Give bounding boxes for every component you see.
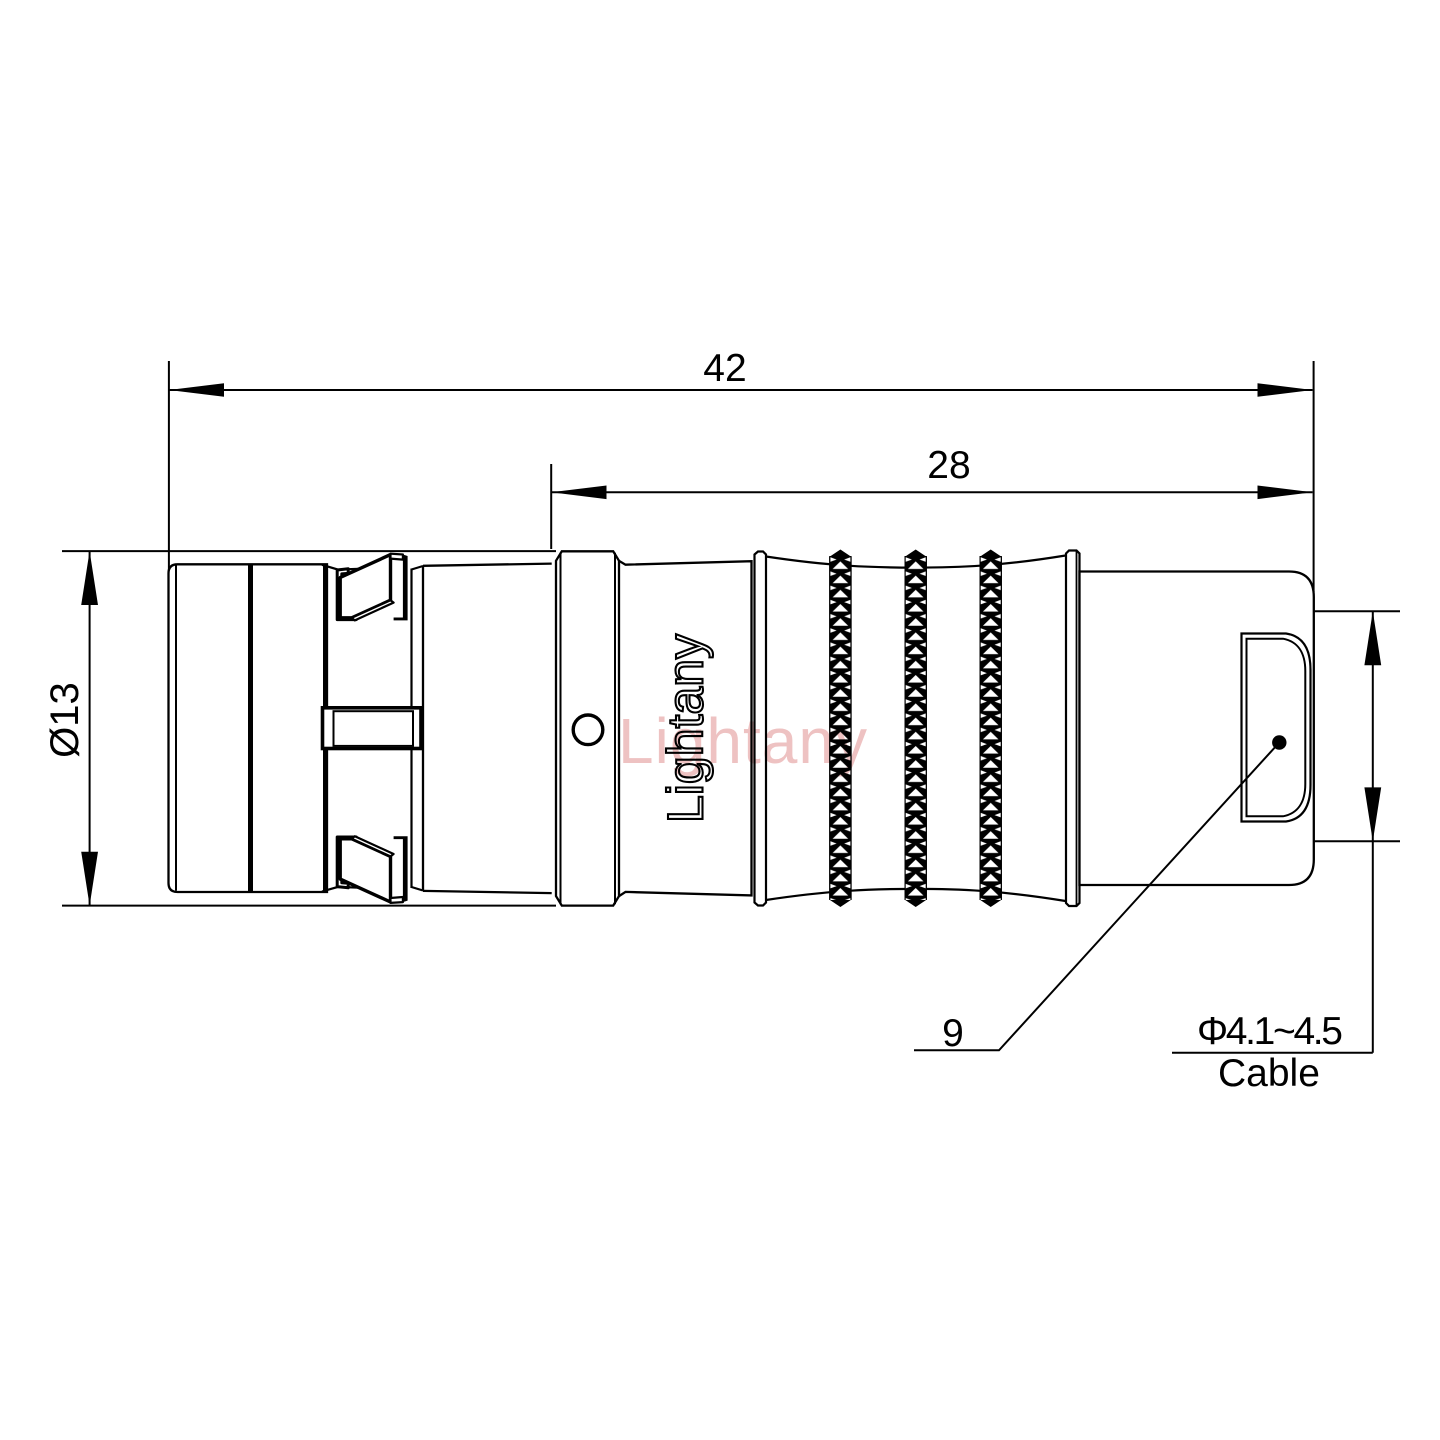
- svg-text:Φ4.1~4.5: Φ4.1~4.5: [1197, 1010, 1343, 1053]
- svg-text:Lightany: Lightany: [618, 705, 868, 777]
- svg-text:Cable: Cable: [1218, 1052, 1320, 1095]
- svg-text:28: 28: [927, 444, 970, 487]
- svg-text:9: 9: [942, 1012, 964, 1055]
- svg-text:Ø13: Ø13: [43, 682, 87, 758]
- svg-text:42: 42: [703, 347, 746, 390]
